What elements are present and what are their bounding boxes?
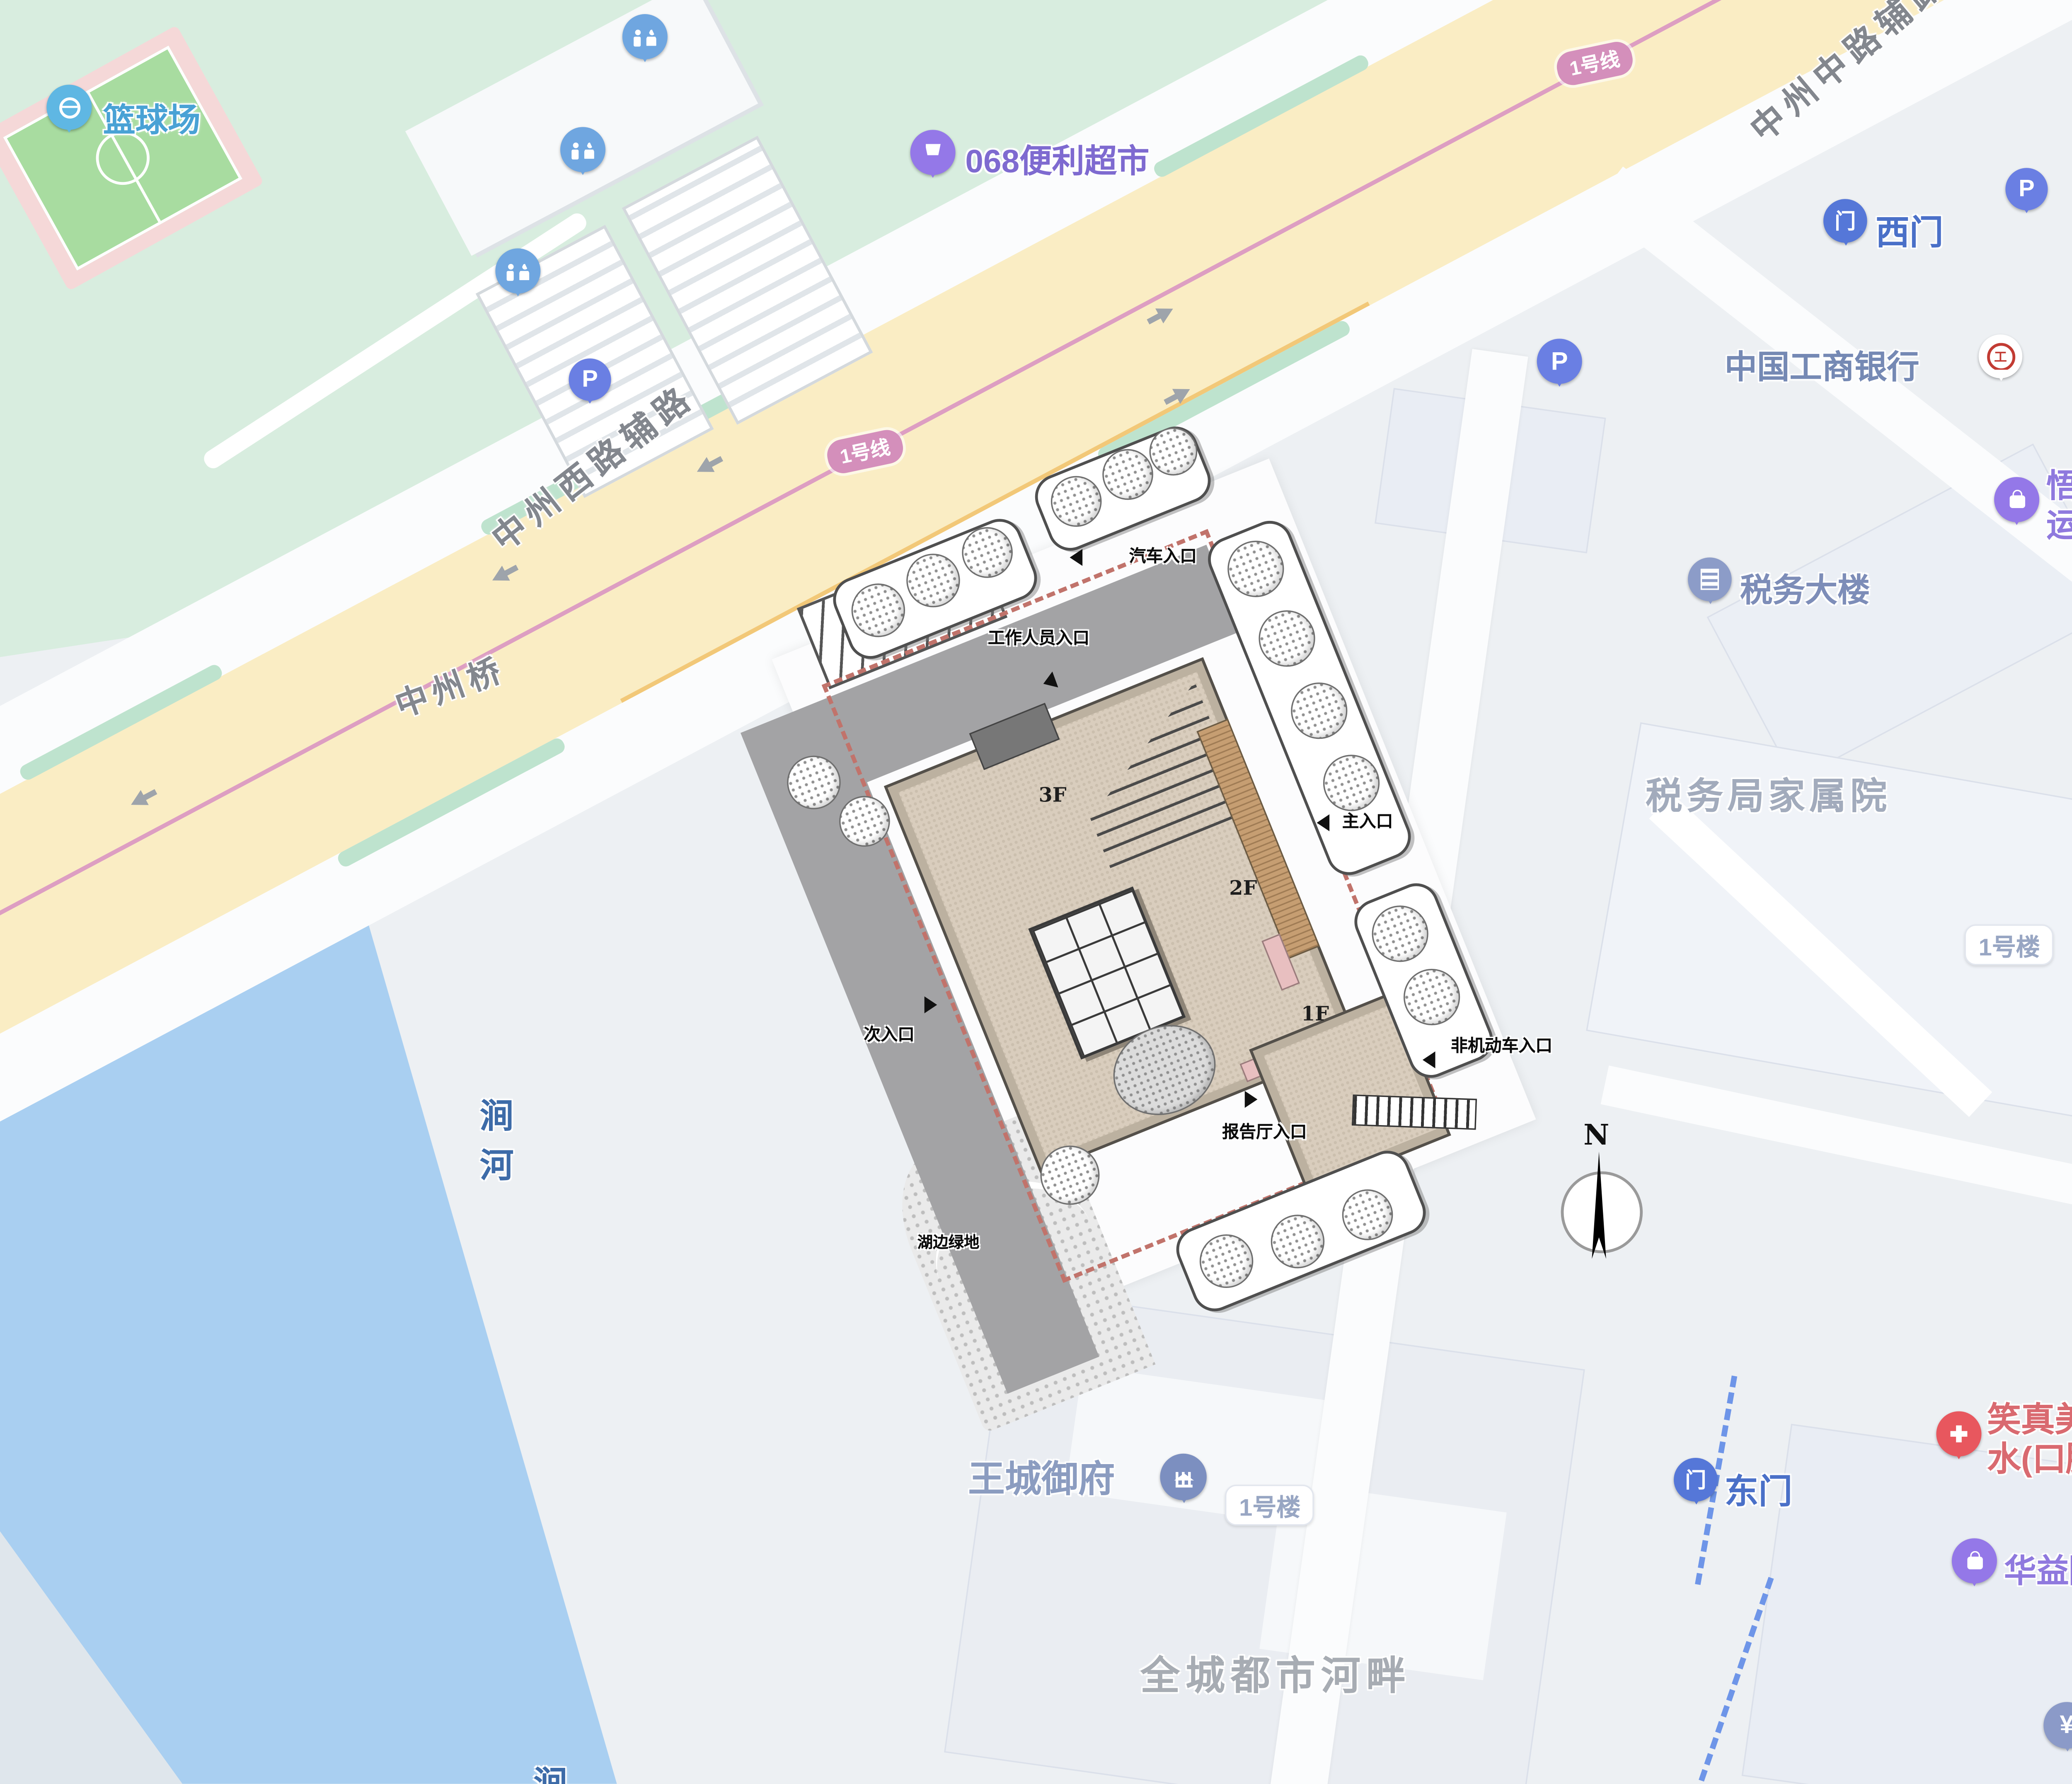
male-figure-icon — [634, 36, 641, 46]
toilet-pin-3[interactable] — [495, 248, 540, 293]
store-label[interactable]: 068便利超市 — [965, 134, 1149, 182]
shopping-bag-icon — [2009, 495, 2024, 508]
tax-building-pin[interactable] — [1688, 557, 1732, 601]
compound-path — [1649, 794, 1992, 1117]
estate-building-icon — [1175, 1472, 1192, 1487]
store-pin[interactable] — [910, 130, 956, 175]
map-canvas[interactable]: 汽车入口 工作人员入口 主入口 次入口 非机动车入口 报告厅入口 湖边绿地 3F… — [0, 0, 2072, 1784]
toilet-pin-2[interactable] — [560, 127, 605, 172]
ceramics-label[interactable]: 华益陶瓷 — [2004, 1544, 2072, 1592]
female-figure-icon — [646, 36, 656, 46]
west-gate-pin[interactable]: 门 — [1823, 199, 1867, 243]
entrance-hall-arrow — [1245, 1091, 1258, 1108]
river-label: 涧 河 — [480, 1094, 514, 1192]
compass-n-label: N — [1583, 1118, 1609, 1152]
shopping-bag-icon — [1967, 1556, 1982, 1569]
river-char-1: 涧 — [480, 1094, 514, 1143]
parking-pin-center[interactable]: P — [1537, 339, 1582, 384]
icbc-logo-icon: 工 — [1986, 342, 2014, 370]
parking-pin-northeast[interactable]: P — [2005, 168, 2048, 210]
wangcheng-pin[interactable] — [1160, 1454, 1206, 1500]
map-viewport: 汽车入口 工作人员入口 主入口 次入口 非机动车入口 报告厅入口 湖边绿地 3F… — [0, 0, 2072, 1784]
clinic-pin[interactable] — [1936, 1411, 1981, 1457]
male-figure-icon — [507, 270, 514, 280]
river-label-partial: 涧 — [533, 1756, 567, 1784]
riverside-complex-label[interactable]: 全城都市河畔 — [1140, 1646, 1411, 1702]
wine-pin[interactable] — [1994, 477, 2039, 522]
building-no1-bubble-right[interactable]: 1号楼 — [1965, 925, 2054, 966]
east-gate-label[interactable]: 东门 — [1725, 1464, 1792, 1513]
floor-label-2f: 2F — [1229, 878, 1257, 900]
basketball-pin[interactable] — [46, 85, 92, 130]
entrance-main-label: 主入口 — [1342, 808, 1393, 833]
office-building-icon — [1701, 569, 1719, 590]
entrance-staff-label: 工作人员入口 — [988, 625, 1089, 649]
entrance-car-arrow — [1070, 549, 1082, 566]
floor-label-1f: 1F — [1301, 1003, 1329, 1026]
parking-pin-west[interactable]: P — [569, 358, 611, 401]
building-no1-bubble-south[interactable]: 1号楼 — [1225, 1485, 1314, 1526]
basketball-label[interactable]: 篮球场 — [103, 93, 201, 141]
wine-label-line2[interactable]: 运营中心 — [2046, 498, 2072, 546]
clinic-label-line2[interactable]: 水(口腔) — [1987, 1431, 2072, 1480]
icbc-label[interactable]: 中国工商银行 — [1725, 340, 1920, 388]
icbc-pin[interactable]: 工 — [1979, 334, 2023, 378]
toilet-pin-1[interactable] — [622, 14, 668, 59]
floor-label-3f: 3F — [1039, 785, 1067, 807]
river-char-2: 河 — [480, 1143, 514, 1192]
shopping-cart-icon — [925, 144, 940, 155]
wangcheng-label[interactable]: 王城御府 — [968, 1451, 1115, 1503]
entrance-secondary-arrow — [925, 996, 937, 1013]
tax-compound-label[interactable]: 税务局家属院 — [1646, 768, 1891, 820]
medical-cross-icon — [1949, 1424, 1969, 1444]
lakeside-green-label: 湖边绿地 — [917, 1231, 980, 1253]
female-figure-icon — [519, 270, 529, 280]
bike-racks — [1352, 1094, 1477, 1130]
entrance-hall-label: 报告厅入口 — [1222, 1119, 1307, 1143]
entrance-nonmotor-label: 非机动车入口 — [1451, 1033, 1552, 1057]
west-gate-label[interactable]: 西门 — [1876, 205, 1943, 254]
tax-building-label[interactable]: 税务大楼 — [1740, 563, 1870, 611]
ceramics-pin[interactable] — [1952, 1538, 1997, 1583]
entrance-secondary-label: 次入口 — [864, 1022, 915, 1046]
basketball-icon — [58, 97, 80, 118]
entrance-car-label: 汽车入口 — [1129, 543, 1197, 567]
entrance-nonmotor-arrow — [1423, 1051, 1435, 1068]
east-gate-pin[interactable]: 门 — [1674, 1458, 1718, 1502]
female-figure-icon — [584, 149, 594, 159]
entrance-main-arrow — [1317, 814, 1329, 831]
male-figure-icon — [571, 149, 579, 159]
